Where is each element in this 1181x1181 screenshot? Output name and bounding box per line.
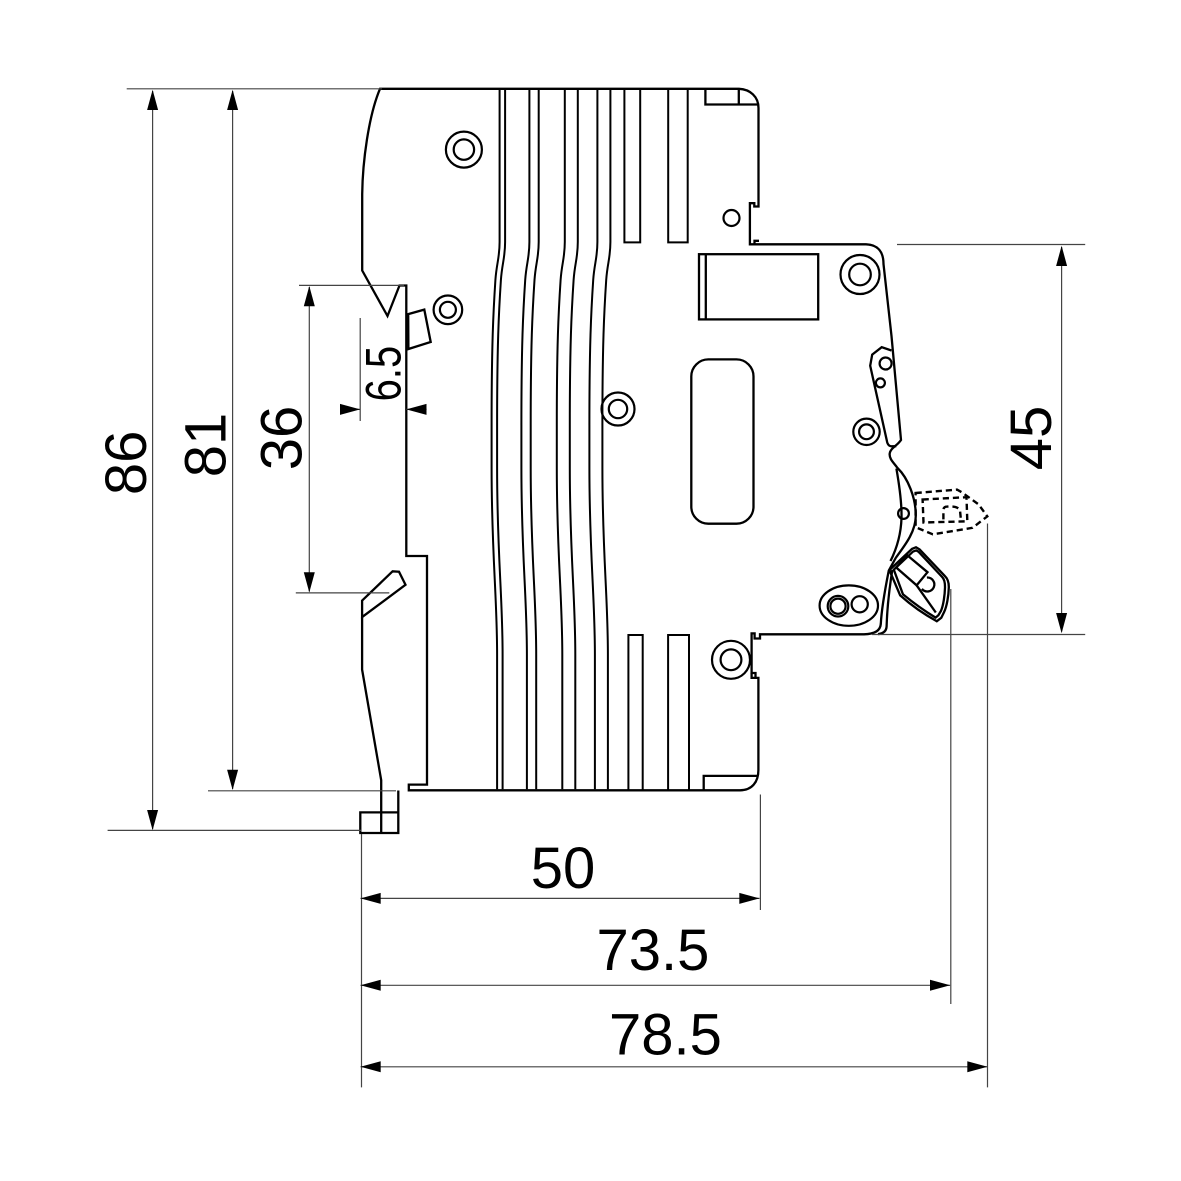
svg-text:81: 81 — [174, 413, 239, 478]
svg-text:86: 86 — [94, 431, 159, 496]
svg-text:6.5: 6.5 — [356, 346, 412, 402]
svg-text:73.5: 73.5 — [597, 918, 710, 983]
svg-text:36: 36 — [250, 406, 315, 471]
svg-text:45: 45 — [999, 406, 1064, 471]
svg-text:50: 50 — [531, 836, 596, 901]
svg-text:78.5: 78.5 — [609, 1003, 722, 1068]
